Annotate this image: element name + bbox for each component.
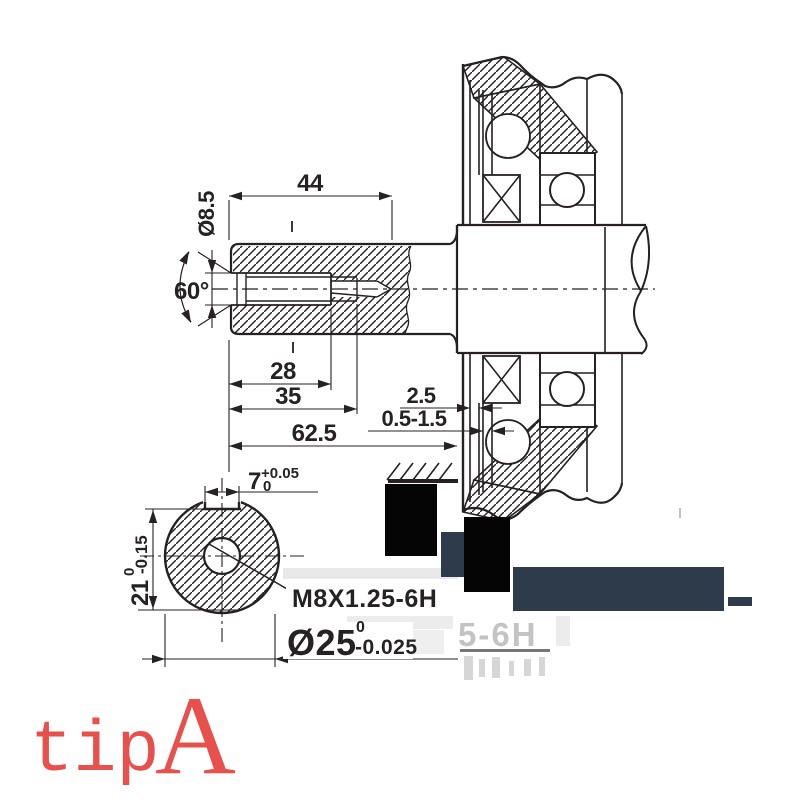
crankshaft-section-drawing: 44 Ø8.5 60° 28 35 62.5 2.5 0.5-1.5 (0, 0, 800, 800)
ball-bearing-bottom (540, 353, 595, 427)
dim-dia-25-tol-upper: 0 (356, 619, 365, 636)
dim-7-tol-lower: 0 (263, 478, 271, 495)
ghost-text: 5-6H (458, 616, 538, 653)
caption-letter: A (155, 674, 236, 798)
dim-35: 35 (275, 383, 301, 410)
dim-7: 7 (248, 468, 261, 495)
oil-seal-bottom (483, 356, 520, 403)
redaction-black-right (464, 517, 510, 592)
redaction-black-left (385, 484, 437, 556)
dim-60deg: 60° (174, 278, 209, 305)
shaft-section (230, 221, 457, 353)
dim-dia-25-tol-lower: -0.025 (355, 636, 418, 659)
shaft-break-symbol (632, 226, 649, 354)
mounting-surface (387, 463, 458, 481)
dim-62-5: 62.5 (292, 420, 337, 447)
dim-21: 21 (127, 580, 154, 606)
ball-bearing-top (540, 153, 595, 225)
ghost-underline (460, 649, 550, 652)
dim-28: 28 (270, 358, 296, 385)
oil-seal-top (483, 175, 520, 222)
dim-dia-8-5: Ø8.5 (194, 191, 219, 237)
caption-prefix: tip (30, 710, 160, 792)
redaction-slate-wide (513, 567, 724, 611)
caption: tip A (30, 674, 236, 798)
thread-callout: M8X1.25-6H (292, 585, 437, 613)
dim-dia-25: Ø25 (287, 622, 357, 663)
dim-2-5: 2.5 (406, 383, 435, 408)
dim-44: 44 (297, 170, 324, 197)
dim-0-5-1-5: 0.5-1.5 (382, 406, 447, 431)
redaction-slate-small (441, 532, 465, 577)
bearing-ball-bottom (550, 372, 584, 406)
dim-21-tol-lower: -0.15 (132, 535, 151, 574)
technical-drawing-page: 44 Ø8.5 60° 28 35 62.5 2.5 0.5-1.5 (0, 0, 800, 800)
redaction-slate-dash (728, 597, 752, 606)
bearing-ball-top (550, 173, 584, 207)
